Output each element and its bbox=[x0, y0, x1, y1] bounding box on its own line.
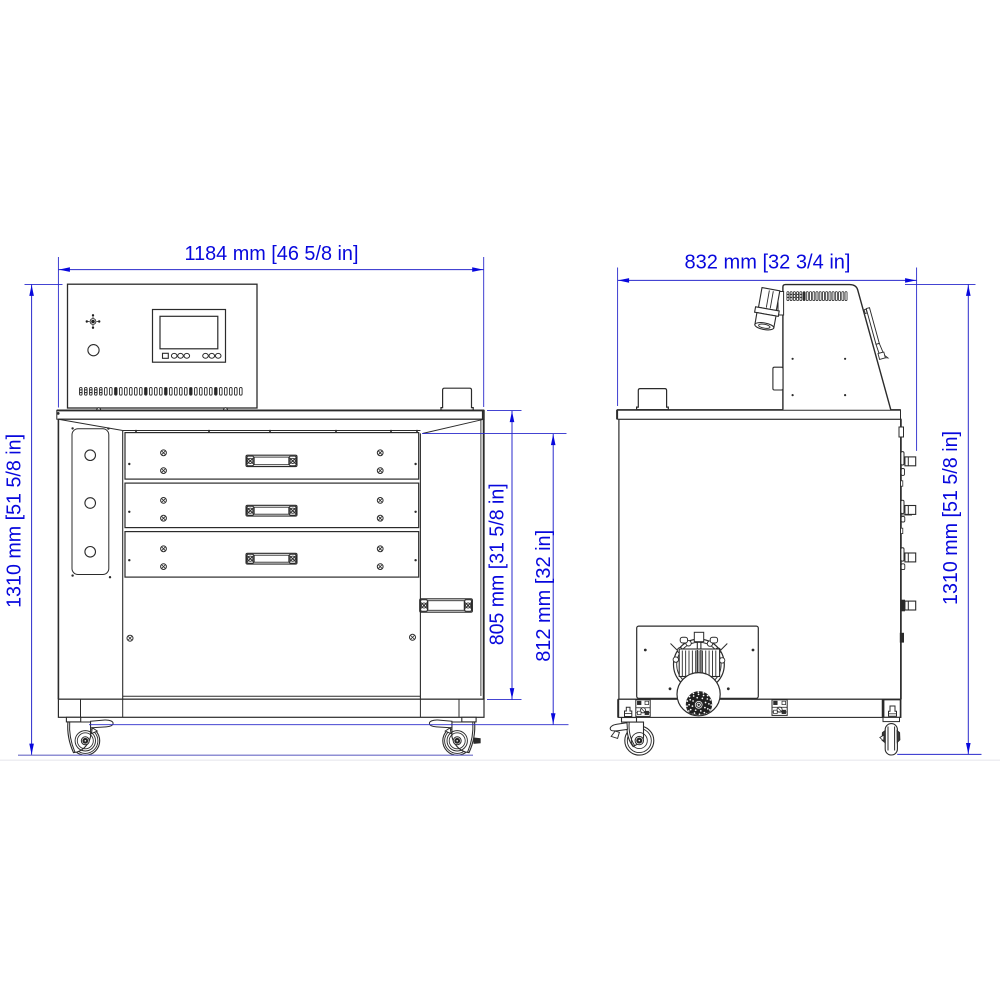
svg-text:1310 mm [51 5/8 in]: 1310 mm [51 5/8 in] bbox=[940, 431, 962, 605]
svg-text:805 mm [31 5/8 in]: 805 mm [31 5/8 in] bbox=[486, 483, 508, 645]
svg-text:812 mm [32 in]: 812 mm [32 in] bbox=[533, 530, 555, 662]
svg-text:1310 mm [51 5/8 in]: 1310 mm [51 5/8 in] bbox=[4, 434, 26, 608]
svg-text:1184 mm [46 5/8 in]: 1184 mm [46 5/8 in] bbox=[185, 243, 359, 265]
svg-text:832 mm [32 3/4 in]: 832 mm [32 3/4 in] bbox=[685, 251, 851, 273]
